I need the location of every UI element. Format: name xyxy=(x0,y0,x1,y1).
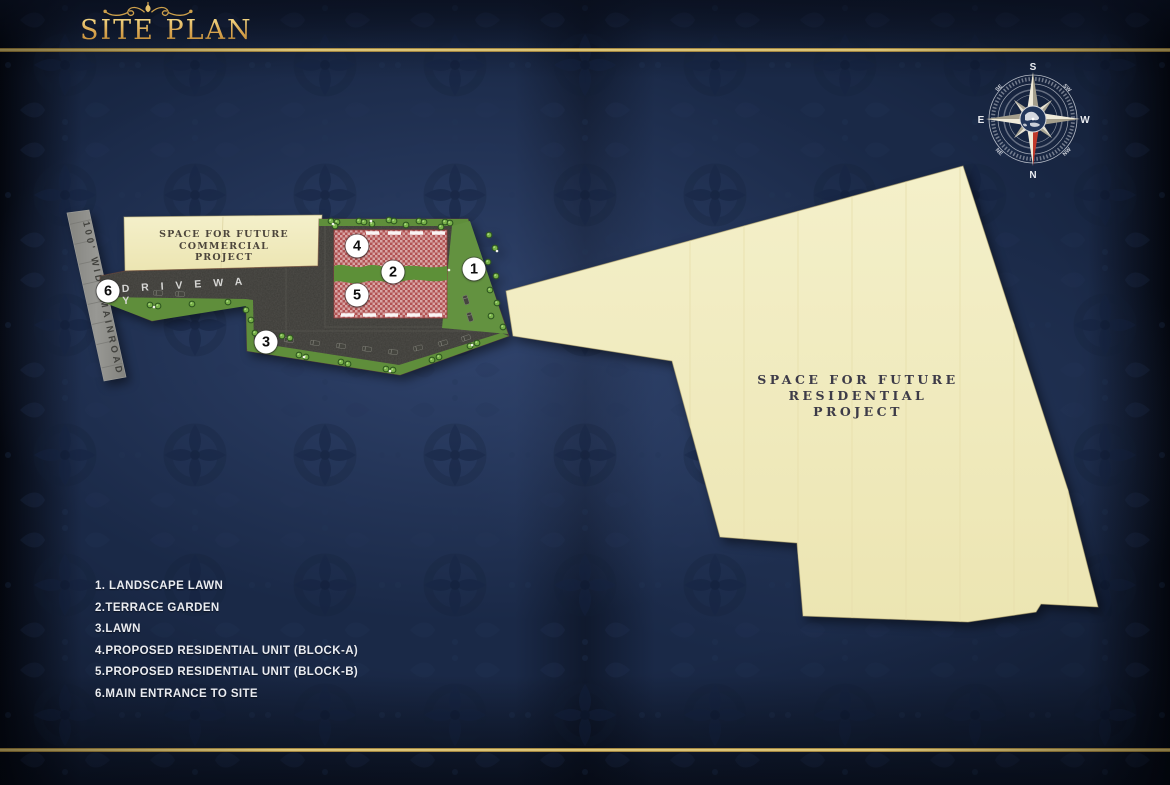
map-marker-4: 4 xyxy=(346,235,369,258)
bush-icon xyxy=(338,359,345,366)
flower-icon xyxy=(496,250,499,253)
residential-line3: PROJECT xyxy=(738,404,978,420)
residential-line1: SPACE FOR FUTURE xyxy=(738,372,978,388)
residential-area-label: SPACE FOR FUTURE RESIDENTIAL PROJECT xyxy=(738,372,978,420)
flower-icon xyxy=(370,220,373,223)
bush-icon xyxy=(494,300,501,307)
bush-icon xyxy=(485,259,492,266)
commercial-area-label: SPACE FOR FUTURE COMMERCIAL PROJECT xyxy=(138,229,310,264)
bush-icon xyxy=(421,219,428,226)
map-marker-5: 5 xyxy=(346,284,369,307)
bush-icon xyxy=(487,287,494,294)
bush-icon xyxy=(486,232,493,239)
flower-icon xyxy=(389,370,392,373)
compass-label-n: N xyxy=(1029,170,1036,181)
flower-icon xyxy=(332,223,335,226)
bush-icon xyxy=(500,324,507,331)
bush-icon xyxy=(436,354,443,361)
compass-label-w: W xyxy=(1080,115,1090,126)
bush-icon xyxy=(287,335,294,342)
compass-label-ne: NE xyxy=(994,147,1004,157)
bush-icon xyxy=(248,317,255,324)
legend-item: 3.LAWN xyxy=(95,623,358,635)
legend-item: 2.TERRACE GARDEN xyxy=(95,602,358,614)
compass-label-s: S xyxy=(1030,62,1037,73)
commercial-line3: PROJECT xyxy=(138,252,310,264)
compass-label-nw: NW xyxy=(1062,146,1073,157)
map-marker-3: 3 xyxy=(255,331,278,354)
flower-icon xyxy=(448,269,451,272)
bush-icon xyxy=(279,333,286,340)
car-icon xyxy=(388,349,398,355)
legend-item: 6.MAIN ENTRANCE TO SITE xyxy=(95,688,358,700)
compass-label-se: SE xyxy=(995,83,1005,93)
bush-icon xyxy=(429,357,436,364)
bush-icon xyxy=(438,224,445,231)
legend-item: 5.PROPOSED RESIDENTIAL UNIT (BLOCK-B) xyxy=(95,666,358,678)
compass-globe-icon xyxy=(1020,106,1046,132)
bush-icon xyxy=(361,219,368,226)
site-plan-page: 100' WIDE MAINROAD SPACE FOR FUTURE COMM… xyxy=(0,0,1170,785)
map-marker-1: 1 xyxy=(463,258,486,281)
bush-icon xyxy=(296,352,303,359)
bush-icon xyxy=(488,313,495,320)
residential-line2: RESIDENTIAL xyxy=(738,388,978,404)
page-title: SITE PLAN xyxy=(80,15,253,46)
gold-divider-bottom xyxy=(0,748,1170,752)
bush-icon xyxy=(447,220,454,227)
bush-icon xyxy=(243,307,250,314)
gold-divider-top xyxy=(0,48,1170,52)
legend-item: 4.PROPOSED RESIDENTIAL UNIT (BLOCK-A) xyxy=(95,645,358,657)
bush-icon xyxy=(474,340,481,347)
bush-icon xyxy=(383,366,390,373)
compass-rose-icon: S N E W SE SW NE NW xyxy=(972,57,1094,183)
bush-icon xyxy=(391,218,398,225)
commercial-line2: COMMERCIAL xyxy=(138,241,310,253)
map-marker-6: 6 xyxy=(97,280,120,303)
commercial-line1: SPACE FOR FUTURE xyxy=(138,229,310,241)
flower-icon xyxy=(471,344,474,347)
bush-icon xyxy=(403,222,410,229)
flower-icon xyxy=(153,306,156,309)
map-marker-2: 2 xyxy=(382,261,405,284)
flower-icon xyxy=(303,356,306,359)
legend-item: 1. LANDSCAPE LAWN xyxy=(95,580,358,592)
bush-icon xyxy=(345,361,352,368)
legend: 1. LANDSCAPE LAWN2.TERRACE GARDEN3.LAWN4… xyxy=(95,580,358,710)
compass-label-e: E xyxy=(978,115,985,126)
bush-icon xyxy=(493,273,500,280)
